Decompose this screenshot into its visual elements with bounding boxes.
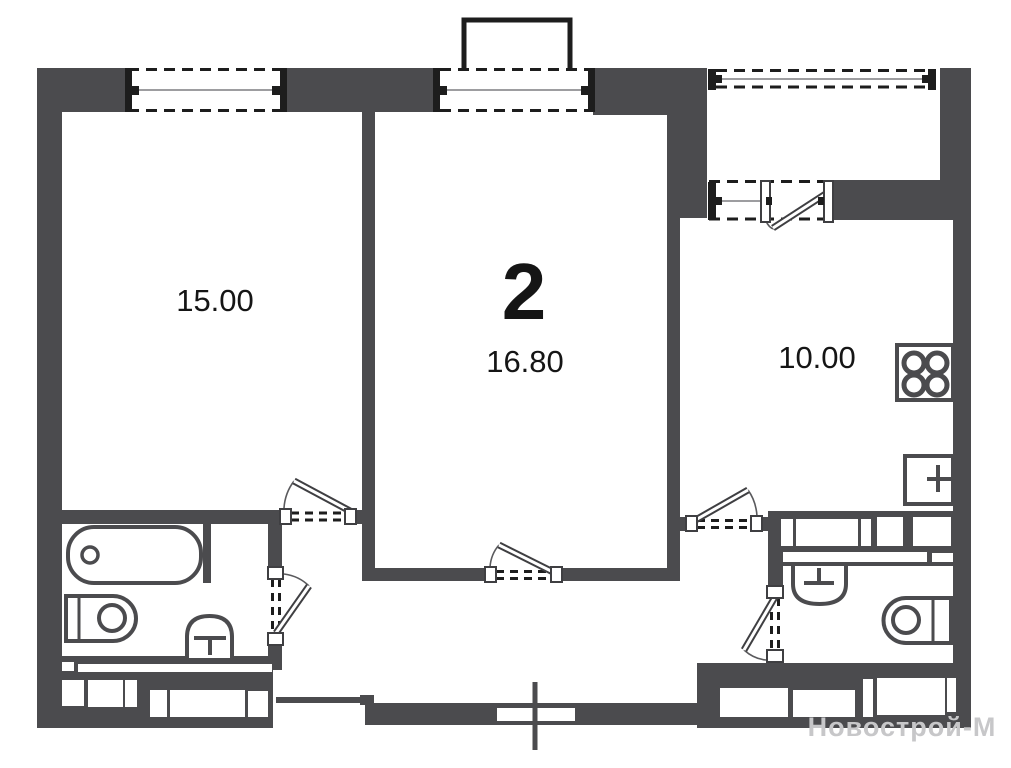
toilet-icon-2 (793, 566, 846, 604)
rooms-count-label: 2 (502, 247, 547, 336)
window-icon-bedroom (433, 68, 595, 112)
door-swing-icon-living (280, 481, 356, 524)
door-swing-icon-kitchen (686, 490, 762, 531)
room-kitchen-area-label: 10.00 (778, 340, 856, 375)
stove-icon (897, 345, 953, 400)
washer-icon (66, 596, 136, 641)
kitchen-sink-icon (905, 456, 953, 504)
walls (37, 68, 971, 728)
window-icon-living (125, 68, 287, 112)
window-icon-balcony-outer (708, 69, 936, 90)
door-swing-icon-balcony (761, 181, 833, 229)
door-swing-icon-bathroom (268, 567, 309, 645)
room-living-area-label: 15.00 (176, 283, 254, 318)
watermark: Новострой-М (808, 712, 997, 742)
balcony-icon (464, 20, 570, 70)
room-bedroom-area-label: 16.80 (486, 344, 564, 379)
floor-plan-drawing: 15.00 2 16.80 10.00 Новострой-М (0, 0, 1011, 768)
toilet-icon (187, 616, 232, 658)
bathtub-icon (68, 521, 211, 583)
door-swing-icon-bedroom (485, 545, 562, 582)
washbasin-icon (884, 598, 952, 643)
floor-plan: 15.00 2 16.80 10.00 Новострой-М (0, 0, 1011, 768)
door-swing-icon-wc (744, 586, 783, 662)
